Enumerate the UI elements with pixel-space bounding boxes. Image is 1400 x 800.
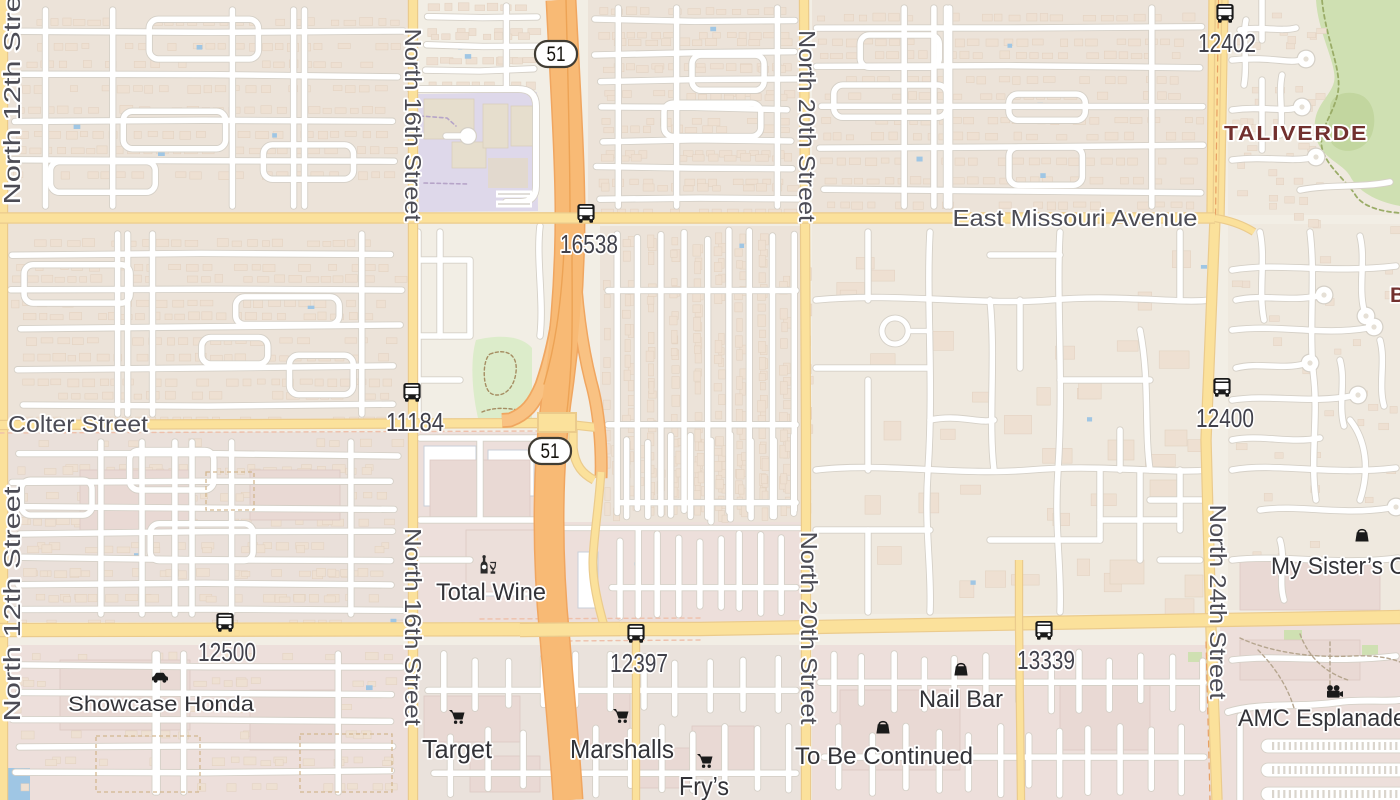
svg-text:North 12th Street: North 12th Street <box>0 0 25 205</box>
svg-text:51: 51 <box>547 43 566 66</box>
svg-text:16538: 16538 <box>560 229 618 259</box>
svg-text:North 16th Street: North 16th Street <box>400 29 426 223</box>
svg-text:North 20th Street: North 20th Street <box>794 30 820 223</box>
svg-text:North 20th Street: North 20th Street <box>796 532 822 726</box>
svg-text:Marshalls: Marshalls <box>570 734 674 764</box>
svg-text:B: B <box>1390 284 1400 307</box>
svg-text:TALIVERDE: TALIVERDE <box>1224 123 1368 145</box>
svg-text:AMC Esplanade: AMC Esplanade <box>1238 705 1400 732</box>
svg-text:12397: 12397 <box>610 648 668 678</box>
svg-text:Total Wine: Total Wine <box>436 579 546 606</box>
svg-text:Target: Target <box>422 734 493 764</box>
svg-text:North 24th Street: North 24th Street <box>1205 505 1231 701</box>
svg-text:East Missouri Avenue: East Missouri Avenue <box>953 205 1198 231</box>
svg-text:To Be Continued: To Be Continued <box>795 743 973 770</box>
svg-text:12402: 12402 <box>1198 28 1256 58</box>
svg-text:51: 51 <box>541 440 560 463</box>
svg-text:Showcase Honda: Showcase Honda <box>68 692 254 716</box>
svg-text:Colter Street: Colter Street <box>8 411 149 437</box>
svg-text:North 12th Street: North 12th Street <box>0 486 25 722</box>
svg-text:Nail Bar: Nail Bar <box>919 686 1003 713</box>
svg-text:13339: 13339 <box>1017 645 1075 675</box>
svg-text:North 16th Street: North 16th Street <box>400 528 426 727</box>
svg-text:My Sister’s Cl: My Sister’s Cl <box>1271 553 1400 580</box>
svg-text:12400: 12400 <box>1196 403 1254 433</box>
svg-text:12500: 12500 <box>198 637 256 667</box>
svg-text:11184: 11184 <box>386 407 444 437</box>
svg-text:Fry’s: Fry’s <box>679 771 729 800</box>
